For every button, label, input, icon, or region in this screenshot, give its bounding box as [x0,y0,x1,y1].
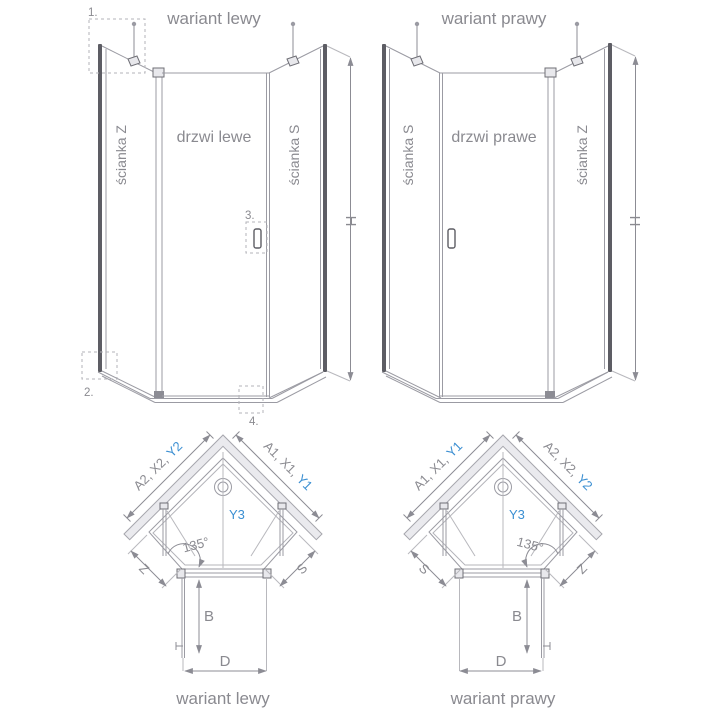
svg-text:D: D [496,653,507,670]
y3-label: Y3 [509,507,525,522]
elevation-left-title: wariant lewy [166,9,261,28]
door-right-label: drzwi prawe [451,129,536,146]
plan-right-figure: Y3 135° A1, X1,Y1 A2, X2,Y2 S [404,432,603,709]
door-handle-icon [254,229,261,248]
dim-b: B [512,580,527,653]
wall-s-label: ścianka S [400,125,416,186]
elevation-right-figure: wariant prawy ścianka S drzwi prawe [382,9,643,403]
hinge-column [153,68,164,398]
hinge-column [545,68,556,398]
elevation-right-title: wariant prawy [441,9,547,28]
svg-text:B: B [512,608,522,625]
front-profile [455,569,549,578]
wall-bracket-icon [571,56,583,66]
height-label: H [342,216,359,227]
open-door [176,578,185,671]
diagram-canvas: wariant lewy ścianka Z [0,0,720,720]
plan-left-figure: Y3 135° A2, X2,Y2 A1, X1,Y1 Z [124,432,323,709]
svg-text:D: D [220,653,231,670]
door-handle-icon [448,229,455,248]
y3-label: Y3 [229,507,245,522]
elevation-left-wall-z [98,44,157,398]
wall-z-label: ścianka Z [113,125,129,185]
dim-d: D [460,579,542,671]
svg-text:S: S [293,560,310,577]
shower-enclosure-diagram: wariant lewy ścianka Z [0,0,720,720]
dim-d: D [185,579,267,671]
svg-text:Z: Z [136,561,152,577]
tray-base-lines [382,372,612,403]
open-door [542,578,551,671]
front-profile [177,569,271,578]
svg-text:3.: 3. [245,210,255,222]
svg-text:S: S [416,560,433,577]
wall-bracket-icon [287,56,299,66]
wall-s-label: ścianka S [286,125,302,186]
wall-z-label: ścianka Z [574,125,590,185]
wall-bracket-icon [411,56,423,66]
callout-4: 4. [239,386,263,428]
svg-text:1.: 1. [88,7,98,19]
height-dimension: H [612,45,643,381]
dim-b: B [199,580,214,653]
svg-text:2.: 2. [84,387,94,399]
svg-text:Z: Z [574,561,590,577]
elevation-right-wall-z [554,43,612,398]
elevation-left-figure: wariant lewy ścianka Z [82,7,359,428]
plan-right-title: wariant prawy [450,689,556,708]
height-label: H [626,216,643,227]
svg-text:4.: 4. [249,416,259,428]
elevation-right-wall-s [382,44,441,398]
plan-left-title: wariant lewy [175,689,270,708]
svg-text:B: B [204,608,214,625]
elevation-left-wall-s [269,44,327,398]
door-left-label: drzwi lewe [177,129,252,146]
height-dimension: H [327,46,359,381]
